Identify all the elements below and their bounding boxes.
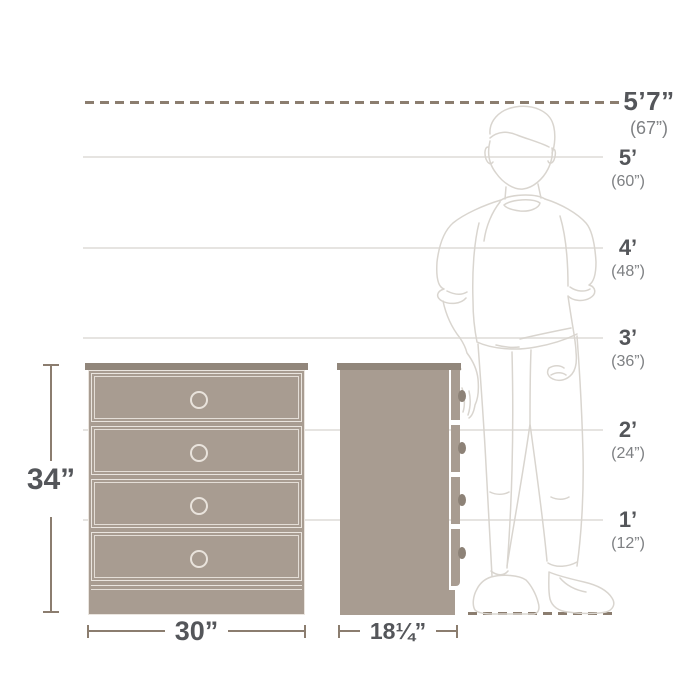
height-mark-1ft: 1’ (12”) (590, 507, 666, 554)
person-shoes-outline (473, 572, 614, 614)
height-mark-inches-label: (24”) (590, 443, 666, 464)
dimension-line (436, 630, 456, 632)
drawer (91, 426, 302, 475)
height-mark-5ft7: 5’7” (67”) (604, 86, 694, 140)
dresser-front-base (91, 585, 302, 613)
person-legs-outline (478, 336, 583, 576)
dimension-tick (456, 625, 458, 638)
height-mark-2ft: 2’ (24”) (590, 417, 666, 464)
drawer-knob-icon (190, 550, 208, 568)
height-mark-3ft: 3’ (36”) (590, 325, 666, 372)
height-mark-inches-label: (60”) (590, 171, 666, 192)
person-head-outline (485, 106, 555, 189)
dimension-line (89, 630, 165, 632)
drawer (91, 373, 302, 422)
person-torso-arms-outline (437, 199, 596, 418)
dresser-side-view (340, 370, 449, 615)
height-mark-5ft: 5’ (60”) (590, 145, 666, 192)
height-dimension: 34” (42, 364, 60, 613)
height-mark-feet-label: 4’ (590, 235, 666, 261)
dimension-line (50, 366, 52, 461)
height-mark-4ft: 4’ (48”) (590, 235, 666, 282)
person-neck-collar-outline (500, 184, 545, 211)
height-mark-inches-label: (36”) (590, 351, 666, 372)
height-mark-feet-label: 1’ (590, 507, 666, 533)
dresser-size-diagram: 5’7” (67”) 5’ (60”) 4’ (48”) 3’ (36”) 2’… (0, 0, 700, 700)
width-dimension: 30” (87, 624, 306, 638)
depth-dimension-label: 18¼” (370, 618, 426, 645)
drawer (91, 479, 302, 528)
dresser-side-top-edge (337, 363, 461, 370)
height-mark-inches-label: (48”) (590, 261, 666, 282)
height-mark-inches-label: (12”) (590, 533, 666, 554)
height-dimension-label: 34” (27, 463, 75, 497)
side-drawer-knob-icon (458, 442, 466, 454)
drawer-knob-icon (190, 497, 208, 515)
side-drawer-knob-icon (458, 547, 466, 559)
dimension-line (340, 630, 360, 632)
dresser-front-top-edge (85, 363, 308, 370)
width-dimension-label: 30” (175, 616, 219, 647)
height-mark-feet-label: 5’7” (604, 86, 694, 116)
dresser-front-view (88, 370, 305, 615)
dimension-line (50, 517, 52, 611)
side-drawer-knob-icon (458, 494, 466, 506)
dimension-tick (43, 611, 59, 613)
drawer-knob-icon (190, 391, 208, 409)
dimension-line (228, 630, 304, 632)
height-mark-feet-label: 2’ (590, 417, 666, 443)
height-mark-feet-label: 5’ (590, 145, 666, 171)
dimension-tick (304, 625, 306, 638)
height-mark-inches-label: (67”) (604, 116, 694, 140)
depth-dimension: 18¼” (338, 624, 458, 638)
drawer (91, 532, 302, 581)
dresser-side-back-leg (446, 590, 455, 615)
side-drawer-knob-icon (458, 390, 466, 402)
drawer-knob-icon (190, 444, 208, 462)
height-mark-feet-label: 3’ (590, 325, 666, 351)
